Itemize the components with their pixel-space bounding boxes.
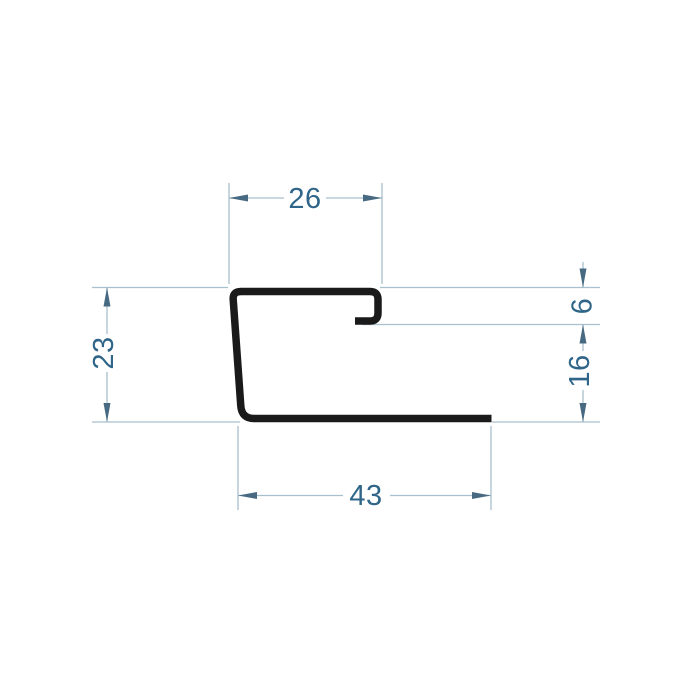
arrowheads xyxy=(104,195,587,500)
dim-left-arrow-up xyxy=(104,288,111,307)
dim-bottom-arrow-left xyxy=(238,492,257,499)
dim-bottom-arrow-right xyxy=(472,492,491,499)
dim-left-arrow-down xyxy=(104,403,111,422)
dim-label-bottom-width: 43 xyxy=(349,480,382,512)
drawing-canvas: 26 23 6 16 43 xyxy=(0,0,700,700)
dim-right-lower-arrow-up xyxy=(580,325,587,344)
profile-technical-drawing: 26 23 6 16 43 xyxy=(0,0,700,700)
dim-label-top-width: 26 xyxy=(288,183,321,215)
dim-right-upper-arrow-down xyxy=(580,269,587,288)
dim-label-right-lower-height: 16 xyxy=(564,354,596,387)
profile-outline xyxy=(233,292,491,419)
dim-right-lower-arrow-down xyxy=(580,403,587,422)
dim-label-right-upper-height: 6 xyxy=(567,298,599,315)
dimension-lines xyxy=(92,183,600,510)
dim-top-arrow-right xyxy=(363,195,382,202)
dim-label-left-height: 23 xyxy=(88,336,120,369)
dim-top-arrow-left xyxy=(229,195,248,202)
dimension-labels: 26 23 6 16 43 xyxy=(88,183,599,512)
